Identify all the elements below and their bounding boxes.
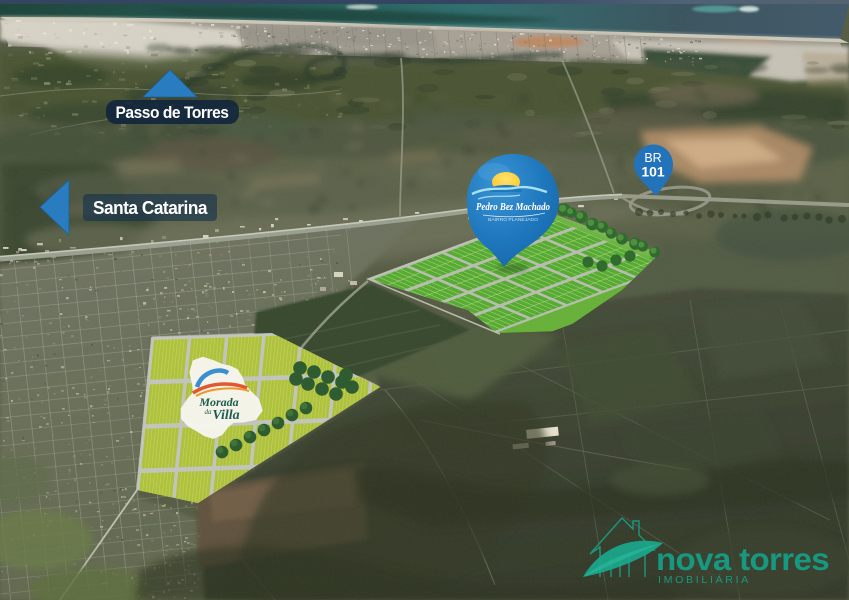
svg-text:BAIRRO PLANEJADO: BAIRRO PLANEJADO — [488, 217, 539, 222]
svg-text:Santa Catarina: Santa Catarina — [93, 198, 208, 218]
svg-text:Pedro Bez Machado: Pedro Bez Machado — [476, 201, 550, 213]
svg-text:nova torres: nova torres — [656, 541, 829, 577]
svg-text:Passo de Torres: Passo de Torres — [116, 103, 229, 122]
svg-text:da: da — [205, 408, 213, 416]
svg-text:Villa: Villa — [212, 408, 239, 423]
svg-text:101: 101 — [641, 164, 665, 180]
svg-text:Morada: Morada — [198, 395, 238, 409]
svg-text:IMOBILIÁRIA: IMOBILIÁRIA — [658, 573, 751, 586]
